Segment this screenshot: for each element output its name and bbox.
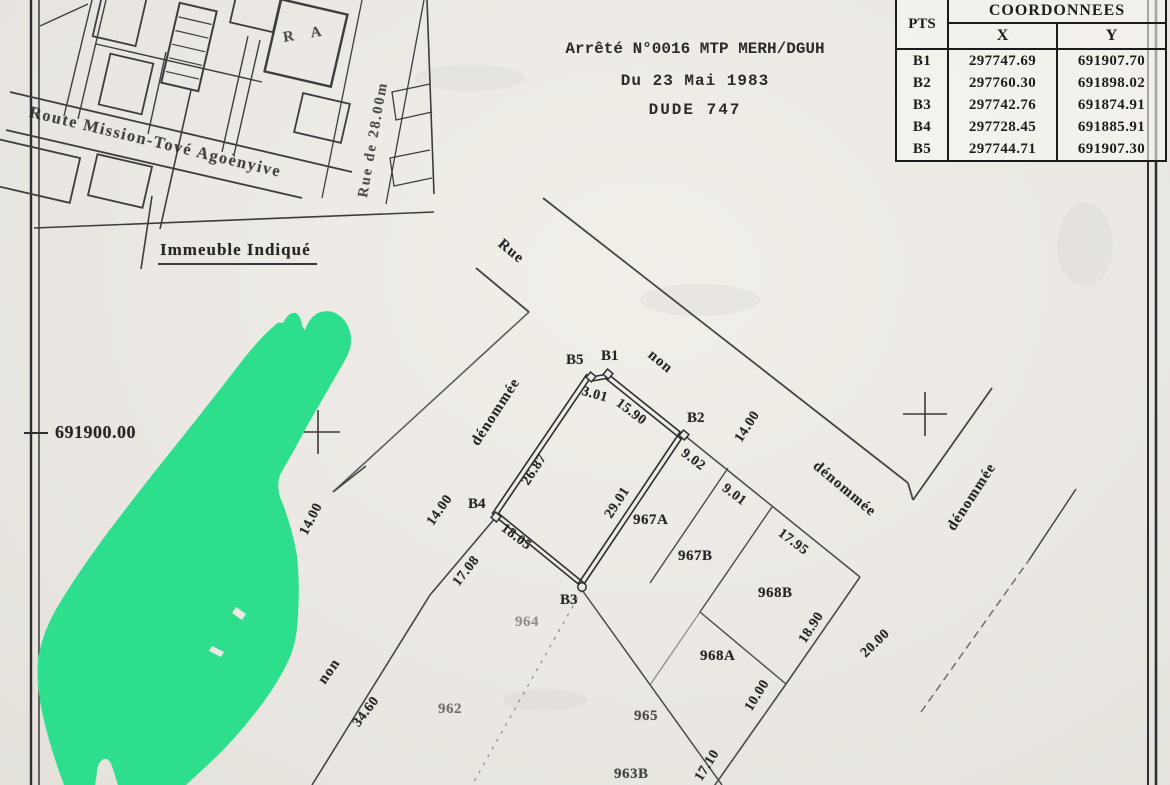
scanned-survey-plan: Arrêté N°0016 MTP MERH/DGUH Du 23 Mai 19… bbox=[0, 0, 1170, 785]
col-header-x: X bbox=[948, 23, 1057, 49]
decree-text-block: Arrêté N°0016 MTP MERH/DGUH Du 23 Mai 19… bbox=[540, 40, 850, 119]
parcel-label-968a: 968A bbox=[700, 648, 735, 665]
parcel-label-968b: 968B bbox=[758, 585, 793, 602]
x-cell: 297744.71 bbox=[948, 138, 1057, 161]
y-cell: 691907.70 bbox=[1057, 49, 1166, 72]
point-label-b3: B3 bbox=[560, 592, 578, 609]
y-cell: 691874.91 bbox=[1057, 94, 1166, 116]
parcel-label-963b: 963B bbox=[614, 766, 649, 783]
parcel-label-967a: 967A bbox=[633, 512, 668, 529]
point-label-b1: B1 bbox=[601, 348, 619, 365]
pt-cell: B3 bbox=[896, 94, 948, 116]
decree-line-3: DUDE 747 bbox=[540, 101, 850, 119]
point-label-b4: B4 bbox=[468, 496, 486, 513]
x-cell: 297728.45 bbox=[948, 116, 1057, 138]
table-title: COORDONNEES bbox=[948, 0, 1166, 23]
x-cell: 297742.76 bbox=[948, 94, 1057, 116]
col-header-pts: PTS bbox=[896, 0, 948, 49]
y-cell: 691907.30 bbox=[1057, 138, 1166, 161]
x-cell: 297760.30 bbox=[948, 72, 1057, 94]
table-row: B2 297760.30 691898.02 bbox=[896, 72, 1166, 94]
y-cell: 691898.02 bbox=[1057, 72, 1166, 94]
parcel-label-962: 962 bbox=[438, 701, 462, 718]
pt-cell: B1 bbox=[896, 49, 948, 72]
parcel-label-965: 965 bbox=[634, 708, 658, 725]
pt-cell: B2 bbox=[896, 72, 948, 94]
point-label-b5: B5 bbox=[566, 352, 584, 369]
indicated-building-callout: Immeuble Indiqué bbox=[158, 240, 317, 265]
coordinates-table: PTS COORDONNEES X Y B1 297747.69 691907.… bbox=[895, 0, 1167, 162]
x-cell: 297747.69 bbox=[948, 49, 1057, 72]
decree-line-1: Arrêté N°0016 MTP MERH/DGUH bbox=[540, 40, 850, 58]
parcel-label-967b: 967B bbox=[678, 548, 713, 565]
y-cell: 691885.91 bbox=[1057, 116, 1166, 138]
grid-coordinate-label: 691900.00 bbox=[55, 422, 136, 443]
table-row: B3 297742.76 691874.91 bbox=[896, 94, 1166, 116]
col-header-y: Y bbox=[1057, 23, 1166, 49]
table-row: B5 297744.71 691907.30 bbox=[896, 138, 1166, 161]
indicated-building bbox=[161, 3, 216, 91]
table-row: B1 297747.69 691907.70 bbox=[896, 49, 1166, 72]
green-highlight-annotation bbox=[38, 311, 352, 785]
pt-cell: B4 bbox=[896, 116, 948, 138]
decree-line-2: Du 23 Mai 1983 bbox=[540, 72, 850, 90]
point-label-b2: B2 bbox=[687, 410, 705, 427]
parcel-label-964: 964 bbox=[515, 614, 539, 631]
pt-cell: B5 bbox=[896, 138, 948, 161]
table-row: B4 297728.45 691885.91 bbox=[896, 116, 1166, 138]
